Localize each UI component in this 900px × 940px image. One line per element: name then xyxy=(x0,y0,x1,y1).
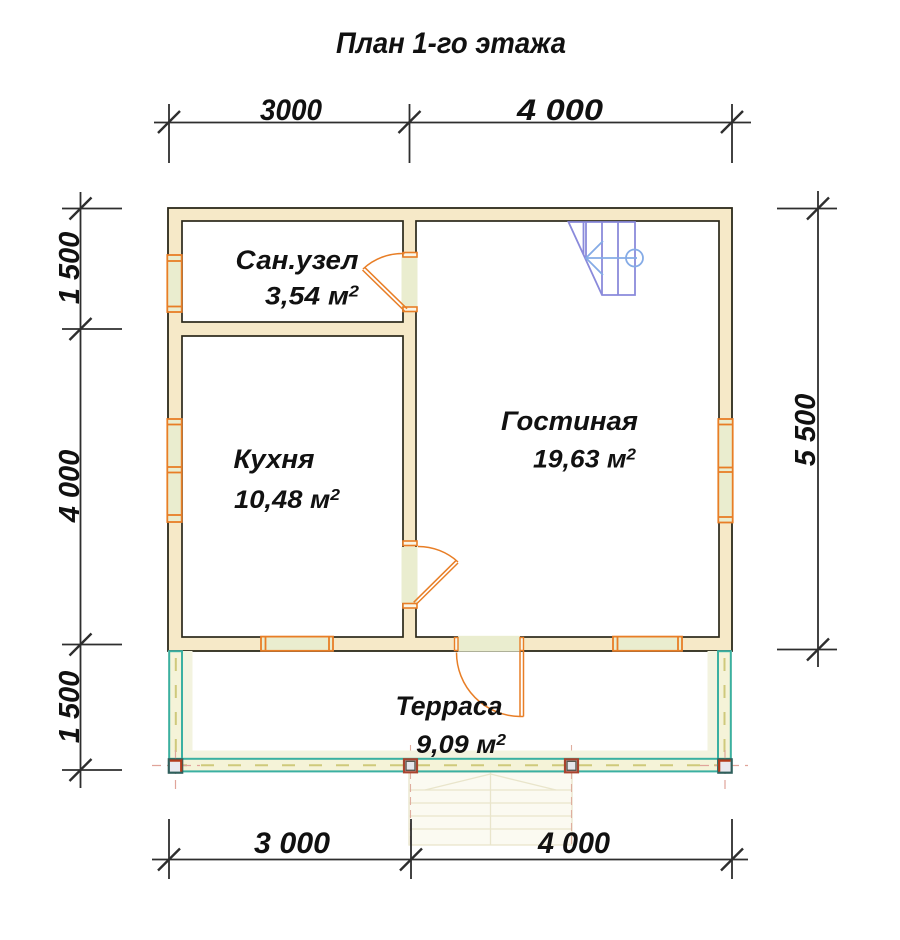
svg-text:1 500: 1 500 xyxy=(54,232,86,305)
svg-text:9,09 м2: 9,09 м2 xyxy=(416,731,506,759)
svg-text:3,54 м2: 3,54 м2 xyxy=(265,283,359,311)
svg-text:4 000: 4 000 xyxy=(537,827,610,860)
svg-text:План 1-го этажа: План 1-го этажа xyxy=(336,27,566,60)
svg-text:Кухня: Кухня xyxy=(234,444,315,474)
svg-text:5 500: 5 500 xyxy=(790,394,822,467)
svg-text:19,63 м2: 19,63 м2 xyxy=(533,446,636,474)
svg-text:3 000: 3 000 xyxy=(254,827,330,860)
svg-text:Гостиная: Гостиная xyxy=(501,406,638,436)
svg-text:3000: 3000 xyxy=(260,94,322,127)
svg-text:Сан.узел: Сан.узел xyxy=(236,245,359,275)
svg-text:1 500: 1 500 xyxy=(54,671,86,744)
svg-text:4 000: 4 000 xyxy=(54,450,86,524)
svg-text:4 000: 4 000 xyxy=(516,94,604,127)
svg-text:Терраса: Терраса xyxy=(396,691,503,721)
svg-text:10,48 м2: 10,48 м2 xyxy=(234,486,340,514)
